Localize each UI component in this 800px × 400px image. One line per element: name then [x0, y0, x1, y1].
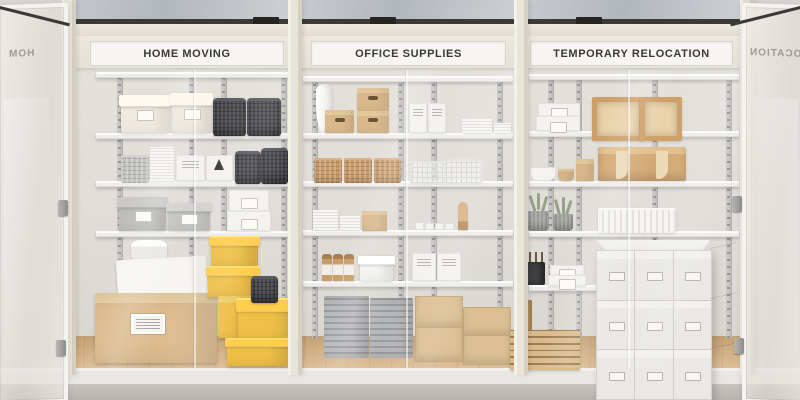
small-canister [415, 222, 424, 230]
dark-woven-basket [235, 151, 261, 184]
sign-home-moving-label: HOME MOVING [143, 48, 230, 60]
white-file-box [409, 103, 427, 133]
gray-weave-box [121, 155, 149, 183]
sign-home-moving: HOME MOVING [90, 41, 284, 66]
yellow-box [238, 298, 295, 340]
shelf-board [96, 72, 288, 78]
book-stack [340, 215, 360, 230]
dark-woven-basket [213, 98, 246, 136]
small-black-basket [251, 276, 278, 303]
white-flat-box [548, 275, 586, 286]
bowl-stack [530, 167, 556, 181]
kraft-drawer-box [463, 307, 511, 336]
sign-temporary-relocation: TEMPORARY RELOCATION [530, 41, 733, 66]
glass-door-seam [627, 70, 630, 368]
pen-cup [527, 262, 545, 285]
small-canister [425, 223, 434, 230]
white-flat-box [227, 211, 271, 231]
door-glass [4, 97, 50, 359]
small-canister [435, 223, 444, 230]
rattan-basket [374, 158, 401, 183]
glass-door-seam [193, 70, 196, 368]
wooden-open-organizer [640, 97, 682, 141]
cream-lidded-box [172, 93, 211, 133]
book-stack [313, 210, 338, 230]
plant-pot [553, 214, 573, 231]
small-canister [445, 223, 454, 230]
rattan-basket [314, 158, 342, 183]
frame-mullion [514, 0, 528, 375]
moving-box [674, 301, 711, 350]
white-file-box [428, 103, 446, 133]
transom-glass-right [528, 0, 742, 21]
white-label-box [176, 155, 205, 181]
kraft-handle-box [325, 110, 354, 133]
white-print-box [206, 155, 233, 181]
white-lidded-box [360, 256, 393, 281]
white-flat-box [229, 190, 269, 211]
door-hinge [734, 338, 744, 354]
white-file-box [437, 253, 461, 281]
rattan-basket [344, 158, 372, 183]
kraft-handle-box [357, 111, 389, 133]
box-stack-side [710, 237, 736, 398]
sign-office-supplies-label: OFFICE SUPPLIES [355, 48, 462, 60]
paper-stack [462, 119, 492, 133]
kraft-block [576, 159, 594, 181]
moving-box [635, 251, 672, 300]
door-hinge [58, 200, 68, 216]
amber-bottle [333, 254, 343, 281]
door-hinge [56, 340, 66, 356]
glass-door-seam [405, 70, 408, 368]
small-pot [558, 169, 574, 181]
shelf-board [529, 181, 739, 187]
dark-woven-basket [247, 98, 281, 136]
kraft-drawer-box [463, 335, 511, 365]
moving-box [674, 350, 711, 399]
plant-pot [527, 211, 549, 231]
label-lines [136, 319, 160, 329]
wooden-desk-organizer [598, 147, 686, 181]
white-flat-box [536, 116, 580, 131]
gray-lidded-box [168, 203, 210, 231]
sign-office-supplies: OFFICE SUPPLIES [311, 41, 506, 66]
shelf-board [303, 133, 513, 139]
organizer-divider [656, 151, 668, 179]
yellow-box [211, 236, 258, 266]
box-label-holder [130, 313, 166, 335]
gray-lidded-box [119, 197, 166, 231]
white-flat-box [538, 103, 580, 116]
moving-box [635, 301, 672, 350]
white-file-box [412, 253, 436, 281]
shelf-upright [497, 80, 503, 338]
print-motif [214, 159, 224, 170]
kraft-drawer-box [415, 327, 463, 362]
door-reflection-text-right: OCATION [749, 47, 800, 60]
kraft-box-stack [362, 211, 387, 231]
amber-bottle [344, 254, 354, 281]
kraft-drawer-box [415, 296, 463, 328]
shelf-board [303, 230, 513, 236]
gray-tray-stack [324, 296, 369, 358]
cream-lidded-box [121, 95, 169, 133]
header-beam [62, 24, 742, 36]
transom-glass-middle [302, 0, 514, 21]
yellow-box [227, 338, 290, 366]
amber-bottle [322, 254, 332, 281]
door-glass [754, 97, 798, 359]
reflection-right-label: OCATION [749, 47, 800, 60]
white-flat-box [550, 265, 584, 275]
moving-box [674, 251, 711, 300]
kraft-moving-box [95, 293, 217, 363]
moving-box-stack [596, 250, 712, 400]
wire-basket [444, 159, 482, 185]
storage-room-photo: HOME MOVING OFFICE SUPPLIES TEMPORARY RE… [0, 0, 800, 400]
wooden-mannequin-hand [458, 202, 468, 230]
frame-mullion [288, 0, 302, 375]
door-hinge [732, 196, 742, 212]
shelf-board [529, 74, 739, 80]
shelf-board [303, 76, 513, 82]
door-reflection-text-left: HOM [8, 48, 34, 60]
wire-basket [410, 161, 446, 185]
paper-stack [494, 123, 511, 133]
reflection-left-label: HOM [8, 48, 34, 60]
kraft-handle-box [357, 88, 389, 111]
plant-leaves [537, 193, 540, 210]
sign-temporary-relocation-label: TEMPORARY RELOCATION [553, 48, 710, 60]
white-box-stack [150, 147, 174, 181]
white-corrugated-box [598, 208, 676, 233]
dark-woven-basket [261, 148, 288, 184]
shelf-board [303, 281, 513, 287]
open-glass-door-right[interactable]: OCATION [742, 3, 800, 400]
moving-box [635, 350, 672, 399]
plant-leaves [562, 197, 565, 214]
wooden-open-organizer [592, 97, 644, 141]
